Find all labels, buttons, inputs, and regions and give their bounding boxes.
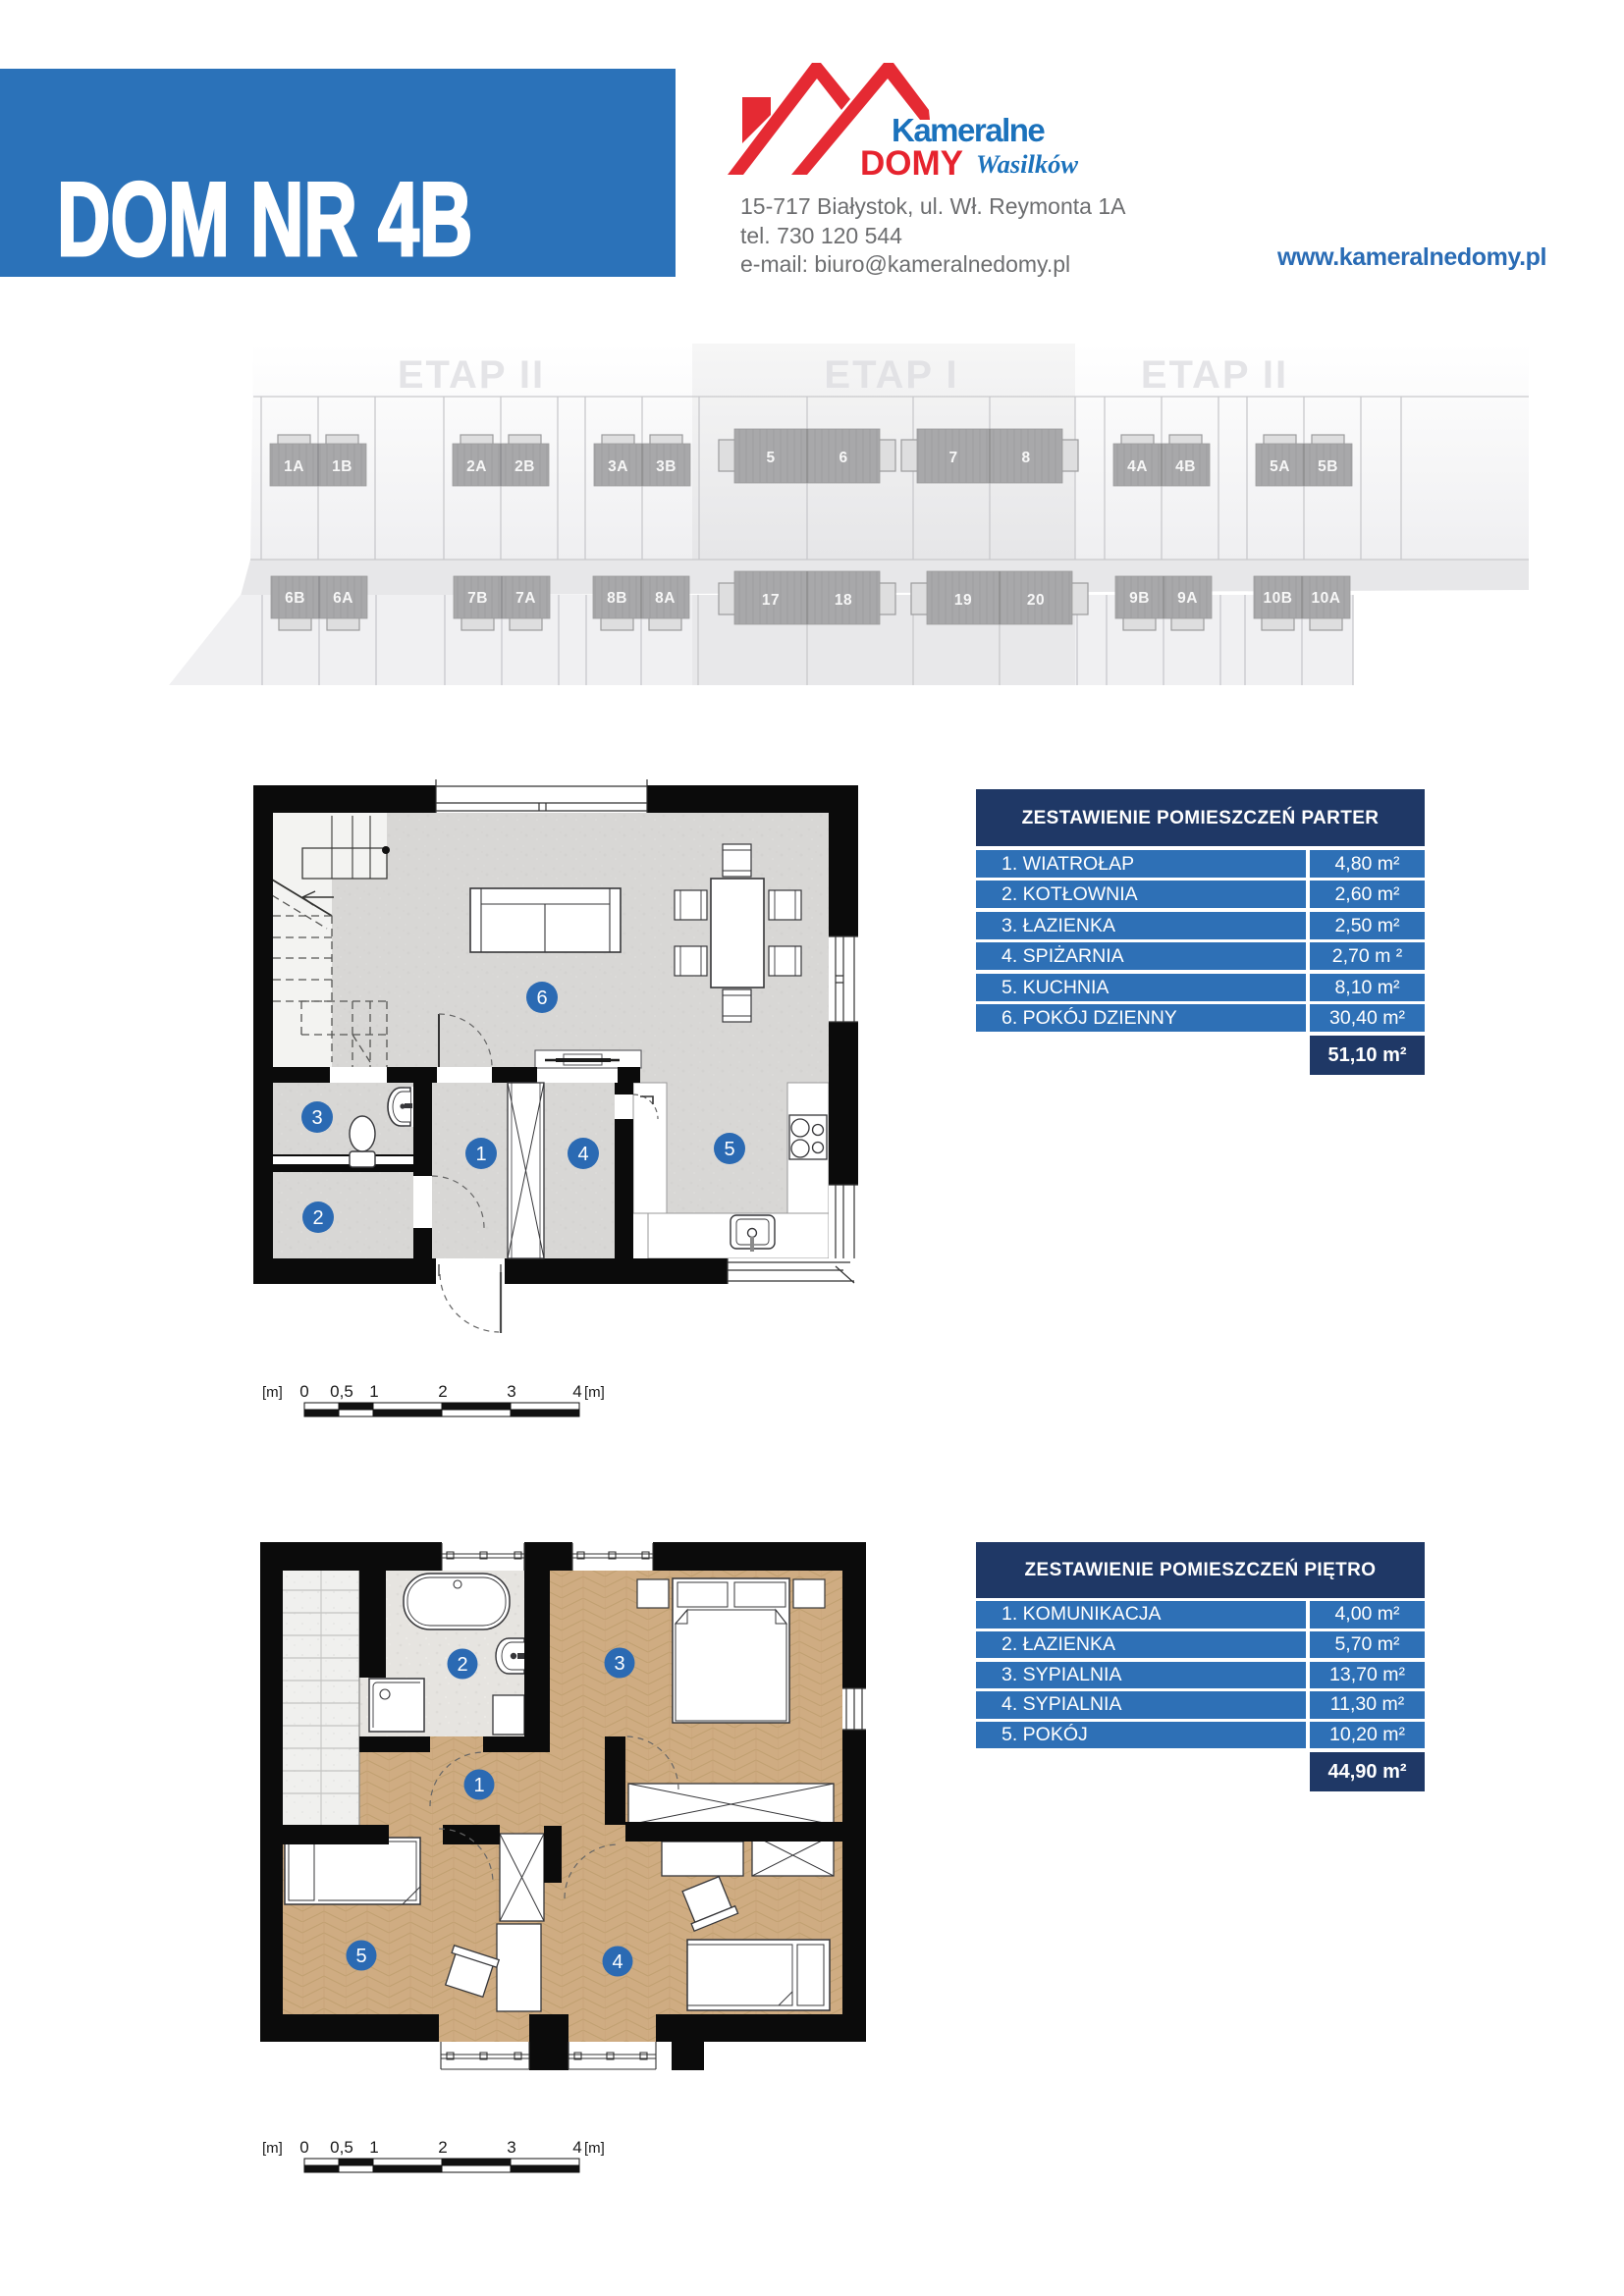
svg-text:4: 4	[572, 2138, 581, 2157]
svg-text:2B: 2B	[514, 458, 535, 475]
svg-text:3: 3	[507, 2138, 515, 2157]
svg-text:9A: 9A	[1177, 590, 1198, 607]
svg-text:4B: 4B	[1175, 458, 1196, 475]
svg-text:9B: 9B	[1129, 590, 1150, 607]
svg-text:2: 2	[312, 1207, 323, 1229]
svg-text:2: 2	[438, 1382, 447, 1401]
svg-text:7B: 7B	[467, 590, 488, 607]
svg-text:6: 6	[839, 450, 847, 466]
svg-text:3B: 3B	[656, 458, 677, 475]
svg-text:4: 4	[577, 1144, 588, 1165]
svg-text:10B: 10B	[1264, 590, 1293, 607]
svg-text:2A: 2A	[466, 458, 487, 475]
svg-text:19: 19	[954, 592, 972, 609]
svg-text:8: 8	[1021, 450, 1030, 466]
svg-text:1: 1	[369, 1382, 378, 1401]
svg-text:18: 18	[835, 592, 852, 609]
svg-text:ETAP I: ETAP I	[824, 353, 958, 397]
svg-text:3: 3	[507, 1382, 515, 1401]
svg-text:3A: 3A	[608, 458, 628, 475]
svg-text:0: 0	[299, 2138, 308, 2157]
svg-text:7A: 7A	[515, 590, 536, 607]
svg-text:1A: 1A	[284, 458, 304, 475]
svg-text:1: 1	[475, 1144, 486, 1165]
svg-text:0,5: 0,5	[330, 1382, 353, 1401]
svg-text:6A: 6A	[333, 590, 353, 607]
svg-text:[m]: [m]	[584, 2140, 605, 2157]
svg-text:8A: 8A	[655, 590, 676, 607]
svg-text:Kameralne: Kameralne	[892, 112, 1045, 148]
svg-text:5: 5	[724, 1139, 734, 1160]
svg-text:8B: 8B	[607, 590, 627, 607]
svg-text:0: 0	[299, 1382, 308, 1401]
svg-text:4A: 4A	[1127, 458, 1148, 475]
svg-text:17: 17	[762, 592, 780, 609]
svg-text:20: 20	[1027, 592, 1045, 609]
svg-text:1: 1	[473, 1775, 484, 1796]
svg-text:ETAP II: ETAP II	[1141, 353, 1288, 397]
svg-text:5B: 5B	[1318, 458, 1338, 475]
svg-text:5: 5	[355, 1946, 366, 1967]
svg-text:2: 2	[457, 1654, 467, 1676]
svg-text:[m]: [m]	[262, 1384, 283, 1401]
svg-text:6B: 6B	[285, 590, 305, 607]
svg-text:5A: 5A	[1270, 458, 1290, 475]
svg-text:DOMY: DOMY	[860, 144, 963, 183]
svg-text:10A: 10A	[1312, 590, 1341, 607]
svg-text:6: 6	[536, 988, 547, 1009]
svg-text:3: 3	[311, 1107, 322, 1129]
svg-text:4: 4	[612, 1951, 623, 1973]
svg-text:3: 3	[614, 1653, 624, 1675]
svg-text:Wasilków: Wasilków	[976, 149, 1078, 179]
svg-text:1B: 1B	[332, 458, 352, 475]
svg-text:7: 7	[948, 450, 957, 466]
svg-text:1: 1	[369, 2138, 378, 2157]
svg-text:2: 2	[438, 2138, 447, 2157]
svg-text:5: 5	[766, 450, 775, 466]
svg-text:0,5: 0,5	[330, 2138, 353, 2157]
svg-text:ETAP II: ETAP II	[398, 353, 545, 397]
svg-text:[m]: [m]	[262, 2140, 283, 2157]
svg-text:[m]: [m]	[584, 1384, 605, 1401]
svg-text:4: 4	[572, 1382, 581, 1401]
